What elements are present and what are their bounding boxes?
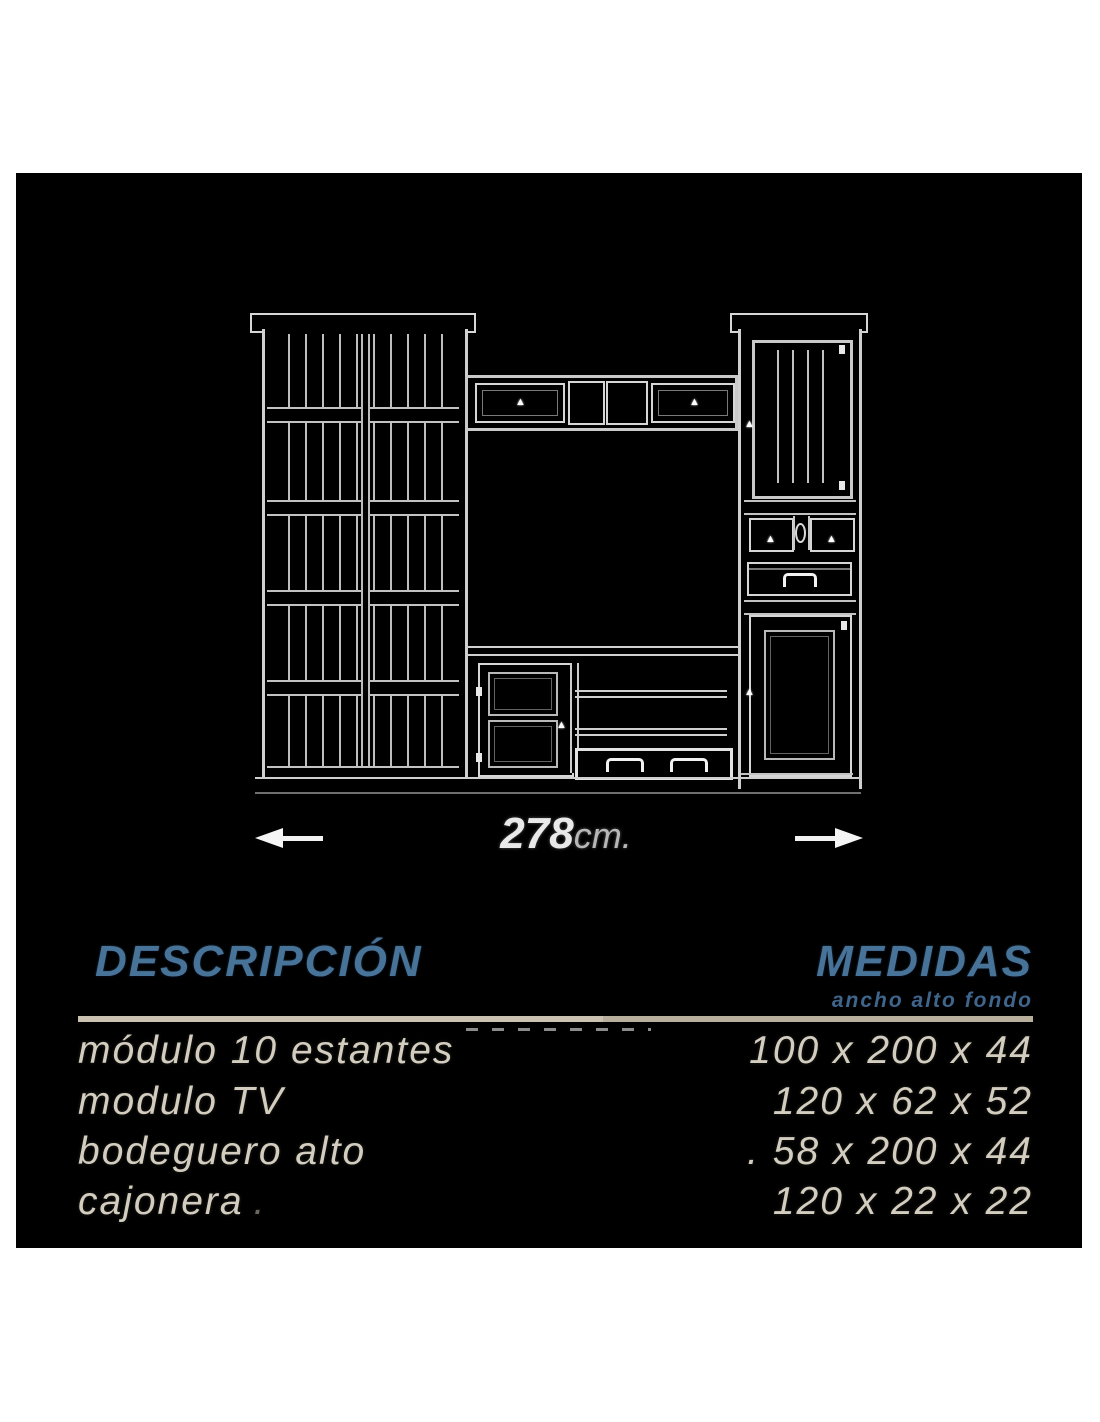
knob-icon: ▲ <box>744 419 755 430</box>
tv-top-line <box>465 646 738 648</box>
arrow-left-tail <box>279 836 323 841</box>
table-header-measures-sub: ancho alto fondo <box>832 989 1033 1013</box>
cabinet-body: ▲ ▲ ▲ <box>738 329 862 789</box>
glass-door-bars <box>764 350 835 483</box>
dimension-unit: cm. <box>574 815 632 856</box>
row-dims: . 58 x 200 x 44 <box>747 1130 1033 1174</box>
table-row: bodeguero alto . 58 x 200 x 44 <box>78 1130 1033 1174</box>
table-header-measures: MEDIDAS <box>816 937 1033 987</box>
row-dims: 100 x 200 x 44 <box>749 1029 1033 1073</box>
arrow-right-tail <box>795 836 839 841</box>
upper-left-door: ▲ <box>475 383 565 423</box>
hinge-icon <box>839 345 845 354</box>
floor-line <box>255 777 861 779</box>
table-rule <box>78 1016 1033 1022</box>
furniture-spec-sheet: ▲ ▲ ▲ <box>0 0 1100 1422</box>
tv-shelf-line <box>575 690 727 692</box>
bookcase-bottom-rail <box>267 766 459 777</box>
tv-top-line <box>465 654 738 656</box>
tv-left-door: ▲ <box>478 663 574 777</box>
drawer-handle-icon <box>783 573 817 587</box>
drawer-handle-icon <box>606 758 644 772</box>
cabinet-small-drawer: ▲ <box>749 518 794 552</box>
plinth-shadow-line <box>255 792 861 794</box>
row-label: módulo 10 estantes <box>78 1029 454 1073</box>
black-canvas: ▲ ▲ ▲ <box>16 173 1082 1248</box>
knob-icon: ▲ <box>826 534 837 545</box>
upper-shelf-module: ▲ ▲ <box>465 375 738 431</box>
row-label: modulo TV <box>78 1080 285 1124</box>
dimension-label: 278cm. <box>471 809 661 859</box>
knob-icon: ▲ <box>556 720 567 731</box>
tv-door-panel <box>488 672 558 716</box>
hinge-icon <box>841 621 847 630</box>
tv-shelf-line <box>575 734 727 736</box>
cabinet-small-drawer: ▲ <box>810 518 855 552</box>
cabinet-base <box>741 773 853 789</box>
knob-icon: ▲ <box>515 397 526 408</box>
row-label: bodeguero alto <box>78 1130 366 1174</box>
knob-icon: ▲ <box>765 534 776 545</box>
cabinet-glass-door <box>752 340 853 499</box>
row-dims: 120 x 62 x 52 <box>773 1080 1033 1124</box>
hinge-icon <box>839 481 845 490</box>
tv-shelf-line <box>575 696 727 698</box>
cabinet-door-panel <box>764 630 835 760</box>
hinge-icon <box>476 753 482 762</box>
hinge-icon <box>476 687 482 696</box>
bookcase-body <box>262 329 468 777</box>
knob-icon: ▲ <box>744 687 755 698</box>
table-header-description: DESCRIPCIÓN <box>95 937 423 987</box>
drawer-handle-icon <box>670 758 708 772</box>
cabinet-bottom-door <box>749 615 852 777</box>
row-label: cajonera. <box>78 1180 266 1224</box>
upper-open-box <box>606 381 648 425</box>
dimension-value: 278 <box>500 809 573 858</box>
upper-open-box <box>568 381 605 425</box>
table-row: modulo TV 120 x 62 x 52 <box>78 1080 1033 1124</box>
table-row: cajonera. 120 x 22 x 22 <box>78 1180 1033 1224</box>
tv-module: ▲ <box>465 646 738 778</box>
upper-right-door: ▲ <box>651 383 735 423</box>
row-label-trailing-dot: . <box>254 1180 267 1223</box>
table-row: módulo 10 estantes 100 x 200 x 44 <box>78 1029 1033 1073</box>
tv-door-panel <box>488 720 558 768</box>
bookcase-center-stile <box>361 334 370 766</box>
ornament-oval <box>795 523 806 543</box>
cabinet-wide-drawer <box>747 562 852 596</box>
knob-icon: ▲ <box>689 397 700 408</box>
tv-drawer <box>575 748 733 780</box>
cabinet-center-ornament <box>793 516 810 550</box>
row-dims: 120 x 22 x 22 <box>773 1180 1033 1224</box>
arrow-right-icon <box>835 828 863 848</box>
cabinet-band <box>744 500 856 515</box>
cabinet-band <box>744 600 856 615</box>
tv-shelf-line <box>575 728 727 730</box>
